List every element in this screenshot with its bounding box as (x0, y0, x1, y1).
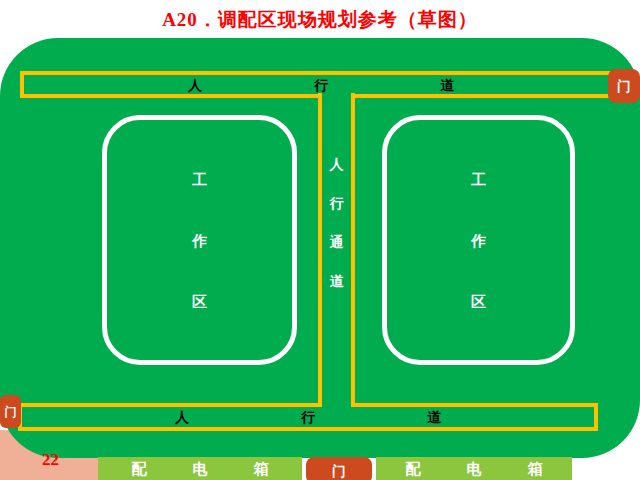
right-power-box: 配 电 箱 (376, 457, 572, 480)
left-work-area-label-char: 工 (192, 172, 207, 187)
right-power-box-label-char: 配 (406, 461, 421, 476)
center-aisle-label-char: 行 (330, 196, 344, 210)
left-power-box-label-char: 配 (132, 461, 147, 476)
gate-bottom-left: 门 (0, 395, 21, 428)
top-walkway-label-char: 人 (188, 78, 202, 92)
bottom-walkway-label-char: 人 (175, 410, 189, 424)
right-work-area-label-char: 作 (471, 233, 486, 248)
bottom-walkway-label-char: 行 (301, 410, 315, 424)
center-aisle-label-char: 通 (330, 235, 344, 249)
left-power-box: 配 电 箱 (98, 457, 302, 480)
bottom-walkway: 人 行 道 (18, 403, 598, 431)
top-walkway-label-char: 行 (314, 78, 328, 92)
left-work-area: 工 作 区 (102, 115, 297, 365)
right-work-area: 工 作 区 (382, 115, 575, 365)
center-aisle-label-char: 人 (330, 157, 344, 171)
gate-bottom-center: 门 (306, 457, 372, 480)
left-power-box-label-char: 电 (193, 461, 208, 476)
right-work-area-label-char: 区 (471, 294, 486, 309)
left-work-area-label-char: 区 (192, 294, 207, 309)
gate-top-right: 门 (608, 69, 640, 103)
left-work-area-label-char: 作 (192, 233, 207, 248)
page-number: 22 (42, 450, 59, 470)
right-power-box-label-char: 电 (467, 461, 482, 476)
slide-title: A20．调配区现场规划参考（草图） (0, 7, 640, 33)
top-walkway-label-char: 道 (440, 78, 454, 92)
center-aisle-label-char: 道 (330, 274, 344, 288)
left-power-box-label-char: 箱 (254, 461, 269, 476)
right-work-area-label-char: 工 (471, 172, 486, 187)
right-power-box-label-char: 箱 (528, 461, 543, 476)
bottom-walkway-label-char: 道 (427, 410, 441, 424)
slide: A20．调配区现场规划参考（草图） 人 行 道 人 行 道 人 行 通 道 工 … (0, 0, 640, 480)
center-aisle: 人 行 通 道 (318, 93, 355, 407)
